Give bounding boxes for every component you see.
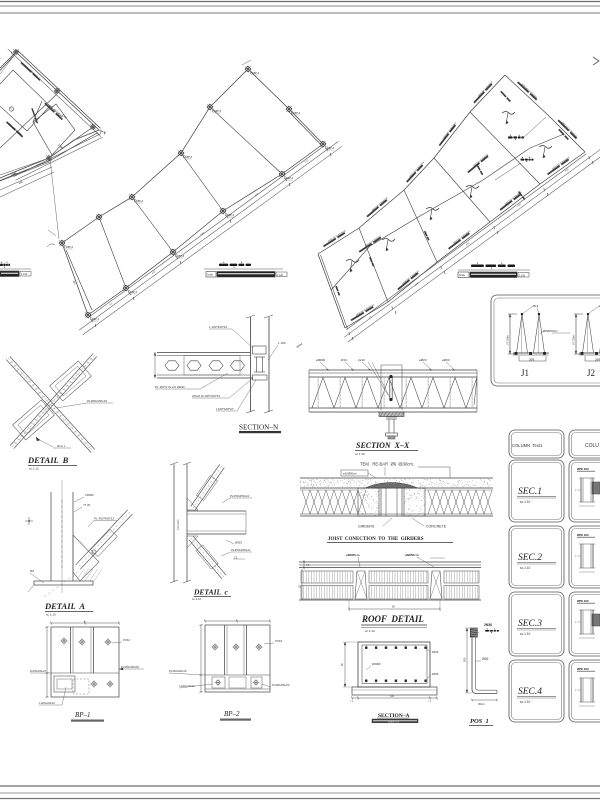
svg-text:J2: J2 bbox=[587, 368, 595, 378]
svg-text:COLU: COLU bbox=[585, 443, 599, 449]
svg-text:Ø14: Ø14 bbox=[533, 304, 539, 308]
svg-text:sc.1:10: sc.1:10 bbox=[520, 632, 531, 636]
svg-text:Ø10: Ø10 bbox=[341, 358, 347, 362]
svg-text:2N30: 2N30 bbox=[484, 623, 492, 627]
svg-text:BP–2: BP–2 bbox=[224, 710, 240, 718]
svg-text:2PL(0.8) 100*100*10: 2PL(0.8) 100*100*10 bbox=[191, 394, 220, 398]
svg-text:SECTION–N: SECTION–N bbox=[239, 424, 279, 432]
svg-text:sc.1:10: sc.1:10 bbox=[192, 597, 201, 601]
svg-text:1:100: 1:100 bbox=[21, 273, 28, 276]
svg-text:6Ø16: 6Ø16 bbox=[432, 672, 439, 676]
svg-text:TEM. RE-BAR Ø6 @30cm.: TEM. RE-BAR Ø6 @30cm. bbox=[360, 462, 414, 467]
svg-text:øØ20: øØ20 bbox=[419, 358, 427, 362]
svg-text:BP-3: BP-3 bbox=[138, 200, 144, 203]
svg-text:sc.1:10: sc.1:10 bbox=[46, 613, 56, 617]
svg-text:øØ30: øØ30 bbox=[442, 358, 450, 362]
svg-text:Scale: Scale bbox=[207, 274, 214, 277]
svg-text:ø8Ø50cm: ø8Ø50cm bbox=[405, 553, 419, 557]
svg-text:27.50m: 27.50m bbox=[572, 334, 576, 345]
svg-text:SEC.4: SEC.4 bbox=[518, 687, 542, 697]
svg-text:6Ø16: 6Ø16 bbox=[432, 650, 439, 654]
svg-text:sc.1:10: sc.1:10 bbox=[365, 629, 375, 633]
svg-text:J1: J1 bbox=[521, 368, 529, 378]
svg-text:ø8Ø30: ø8Ø30 bbox=[316, 358, 326, 362]
svg-text:Ø6Ø200Cm: Ø6Ø200Cm bbox=[543, 329, 559, 333]
svg-text:sc.1:10: sc.1:10 bbox=[520, 700, 531, 704]
svg-text:100: 100 bbox=[390, 695, 395, 698]
svg-text:sc.1:12: sc.1:12 bbox=[29, 467, 39, 471]
svg-text:2IPE 160: 2IPE 160 bbox=[577, 667, 589, 671]
svg-text:L 100: L 100 bbox=[278, 341, 286, 345]
svg-text:BP-4: BP-4 bbox=[295, 112, 301, 115]
svg-text:L120x120x10: L120x120x10 bbox=[179, 684, 195, 688]
svg-text:8M: 8M bbox=[30, 569, 35, 573]
svg-text:POS4: POS4 bbox=[275, 639, 282, 643]
svg-text:COLUMN: COLUMN bbox=[177, 519, 180, 530]
svg-text:DETAIL c: DETAIL c bbox=[193, 588, 229, 597]
svg-text:POS1: POS1 bbox=[123, 638, 130, 642]
svg-text:2ø10: 2ø10 bbox=[358, 358, 365, 362]
svg-text:1:100: 1:100 bbox=[519, 274, 526, 277]
svg-text:ROOF DETAIL: ROOF DETAIL bbox=[361, 614, 424, 624]
svg-text:PL 300*2 IN 1/2 DESF: PL 300*2 IN 1/2 DESF bbox=[155, 385, 185, 389]
svg-text:BP-4: BP-4 bbox=[254, 72, 260, 75]
svg-text:sc.1:10: sc.1:10 bbox=[355, 452, 365, 456]
svg-text:#Ø18Ø: #Ø18Ø bbox=[372, 662, 380, 666]
svg-text:DETAIL B: DETAIL B bbox=[27, 455, 69, 465]
svg-text:CONCRETE: CONCRETE bbox=[426, 525, 447, 529]
svg-text:BP-3: BP-3 bbox=[187, 156, 193, 159]
svg-text:PL450x200x10: PL450x200x10 bbox=[30, 670, 47, 673]
svg-text:sc.1:10: sc.1:10 bbox=[520, 500, 531, 504]
svg-text:JOIST CONECTION TO THE GIR: JOIST CONECTION TO THE GIRDERS bbox=[328, 537, 424, 542]
svg-text:PL 450*450*12: PL 450*450*12 bbox=[94, 517, 114, 521]
svg-text:2Ø6: 2Ø6 bbox=[529, 358, 535, 362]
svg-text:GIRDERS: GIRDERS bbox=[358, 525, 375, 529]
svg-text:45cm: 45cm bbox=[478, 702, 486, 706]
svg-text:PL450x450x20: PL450x450x20 bbox=[121, 665, 139, 669]
svg-text:27.50m: 27.50m bbox=[506, 334, 510, 345]
svg-text:SEC.2: SEC.2 bbox=[518, 553, 542, 563]
svg-text:BP-2: BP-2 bbox=[68, 246, 74, 249]
svg-text:PL450x450x12: PL450x450x12 bbox=[230, 494, 250, 498]
svg-text:ø8Ø25cm: ø8Ø25cm bbox=[346, 553, 360, 557]
svg-text:COLUMN Text1: COLUMN Text1 bbox=[512, 443, 543, 448]
svg-text:77 30: 77 30 bbox=[83, 503, 90, 507]
svg-text:sc.1:10: sc.1:10 bbox=[520, 566, 531, 570]
svg-text:SEC.1: SEC.1 bbox=[518, 487, 542, 497]
svg-text:8mm L: 8mm L bbox=[57, 444, 66, 448]
svg-text:SECTION X–X: SECTION X–X bbox=[356, 441, 410, 450]
svg-text:BP-3: BP-3 bbox=[216, 110, 222, 113]
svg-text:BP–1: BP–1 bbox=[75, 711, 91, 719]
svg-text:L100*100*10: L100*100*10 bbox=[216, 407, 234, 411]
svg-text:BP-1: BP-1 bbox=[94, 318, 100, 321]
svg-text:SCALE 1:25: SCALE 1:25 bbox=[388, 720, 400, 723]
svg-text:PL450x450x12: PL450x450x12 bbox=[231, 548, 251, 552]
svg-text:Ø26: Ø26 bbox=[482, 657, 489, 661]
svg-text:BP-3: BP-3 bbox=[229, 214, 235, 217]
svg-text:PL450x200x16: PL450x200x16 bbox=[169, 669, 187, 673]
svg-text:SEC.3: SEC.3 bbox=[518, 619, 542, 629]
svg-text:DETAIL A: DETAIL A bbox=[44, 601, 85, 611]
svg-text:PL450x450x20: PL450x450x20 bbox=[272, 683, 290, 687]
svg-text:2IPE 160: 2IPE 160 bbox=[577, 599, 589, 603]
svg-text:500: 500 bbox=[463, 657, 467, 662]
svg-text:L 100*100*10: L 100*100*10 bbox=[209, 325, 227, 329]
svg-text:8M16: 8M16 bbox=[235, 541, 242, 545]
svg-text:PL300x450x10: PL300x450x10 bbox=[87, 399, 107, 403]
svg-text:2Ø6: 2Ø6 bbox=[595, 358, 600, 362]
svg-text:1:100: 1:100 bbox=[277, 274, 284, 277]
svg-text:2IPE 160: 2IPE 160 bbox=[577, 467, 589, 471]
svg-text:POS 1: POS 1 bbox=[470, 718, 489, 725]
svg-text:CB300: CB300 bbox=[85, 493, 94, 497]
svg-text:L120x120x10: L120x120x10 bbox=[39, 701, 55, 705]
svg-text:ø10Ø50cm: ø10Ø50cm bbox=[343, 472, 358, 476]
svg-text:Scale: Scale bbox=[459, 274, 466, 277]
svg-text:2IPE 160: 2IPE 160 bbox=[577, 533, 589, 537]
